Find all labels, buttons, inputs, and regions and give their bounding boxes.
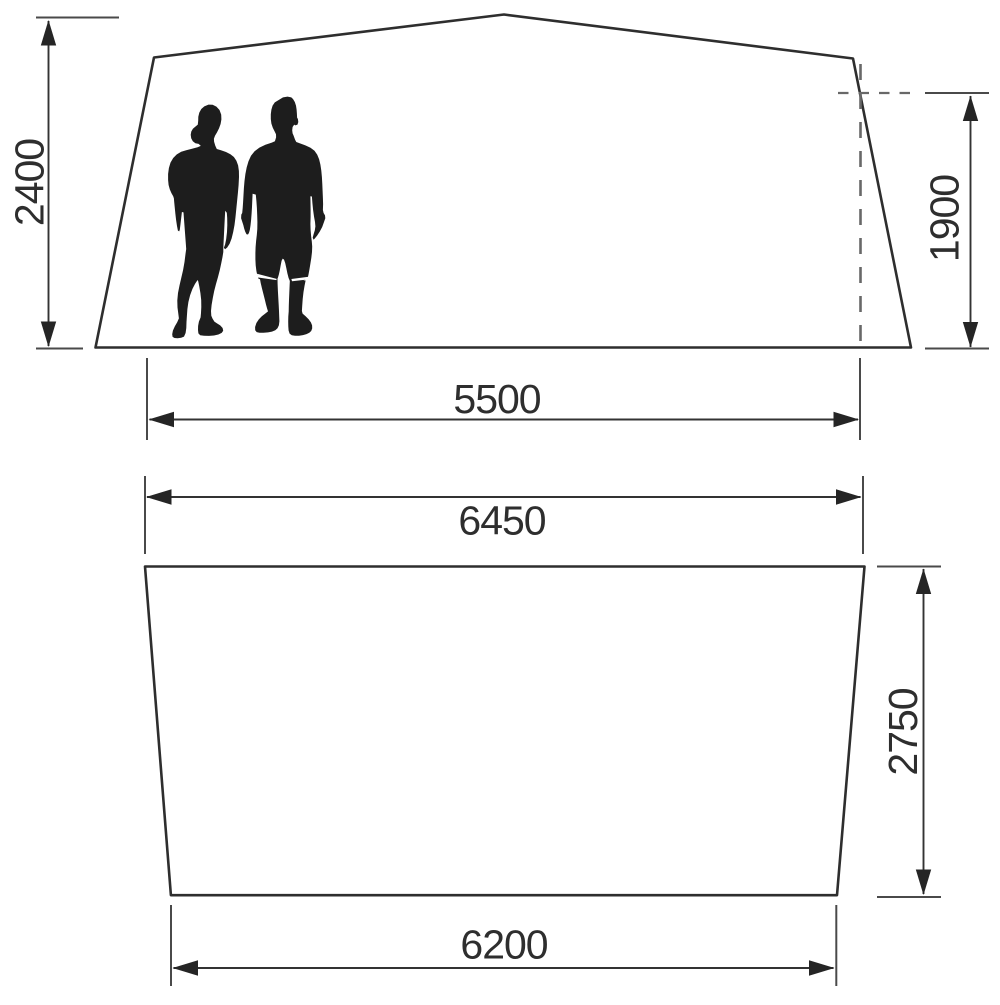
- svg-text:5500: 5500: [453, 376, 540, 422]
- svg-text:1900: 1900: [922, 175, 968, 262]
- svg-text:2750: 2750: [880, 688, 926, 775]
- svg-text:2400: 2400: [7, 139, 53, 226]
- svg-text:6200: 6200: [460, 922, 547, 968]
- svg-text:6450: 6450: [458, 498, 545, 544]
